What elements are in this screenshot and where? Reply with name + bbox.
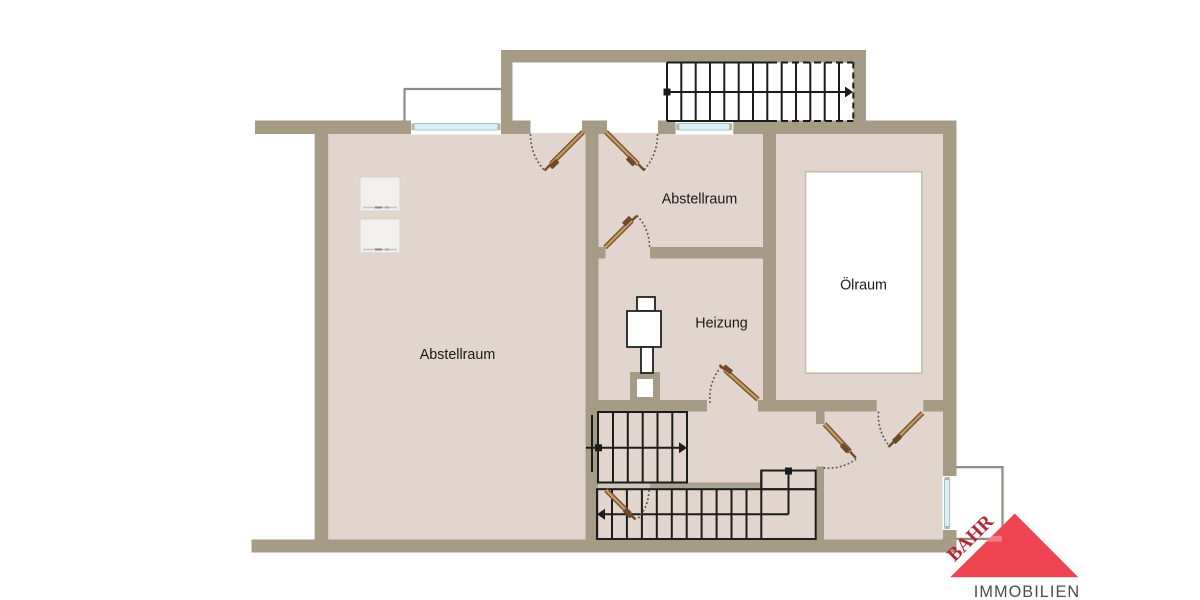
svg-text:Abstellraum: Abstellraum <box>420 347 496 363</box>
svg-text:Ölraum: Ölraum <box>840 276 887 294</box>
svg-text:Heizung: Heizung <box>695 316 748 332</box>
svg-text:Abstellraum: Abstellraum <box>662 192 738 208</box>
svg-text:IMMOBILIEN: IMMOBILIEN <box>974 583 1080 600</box>
